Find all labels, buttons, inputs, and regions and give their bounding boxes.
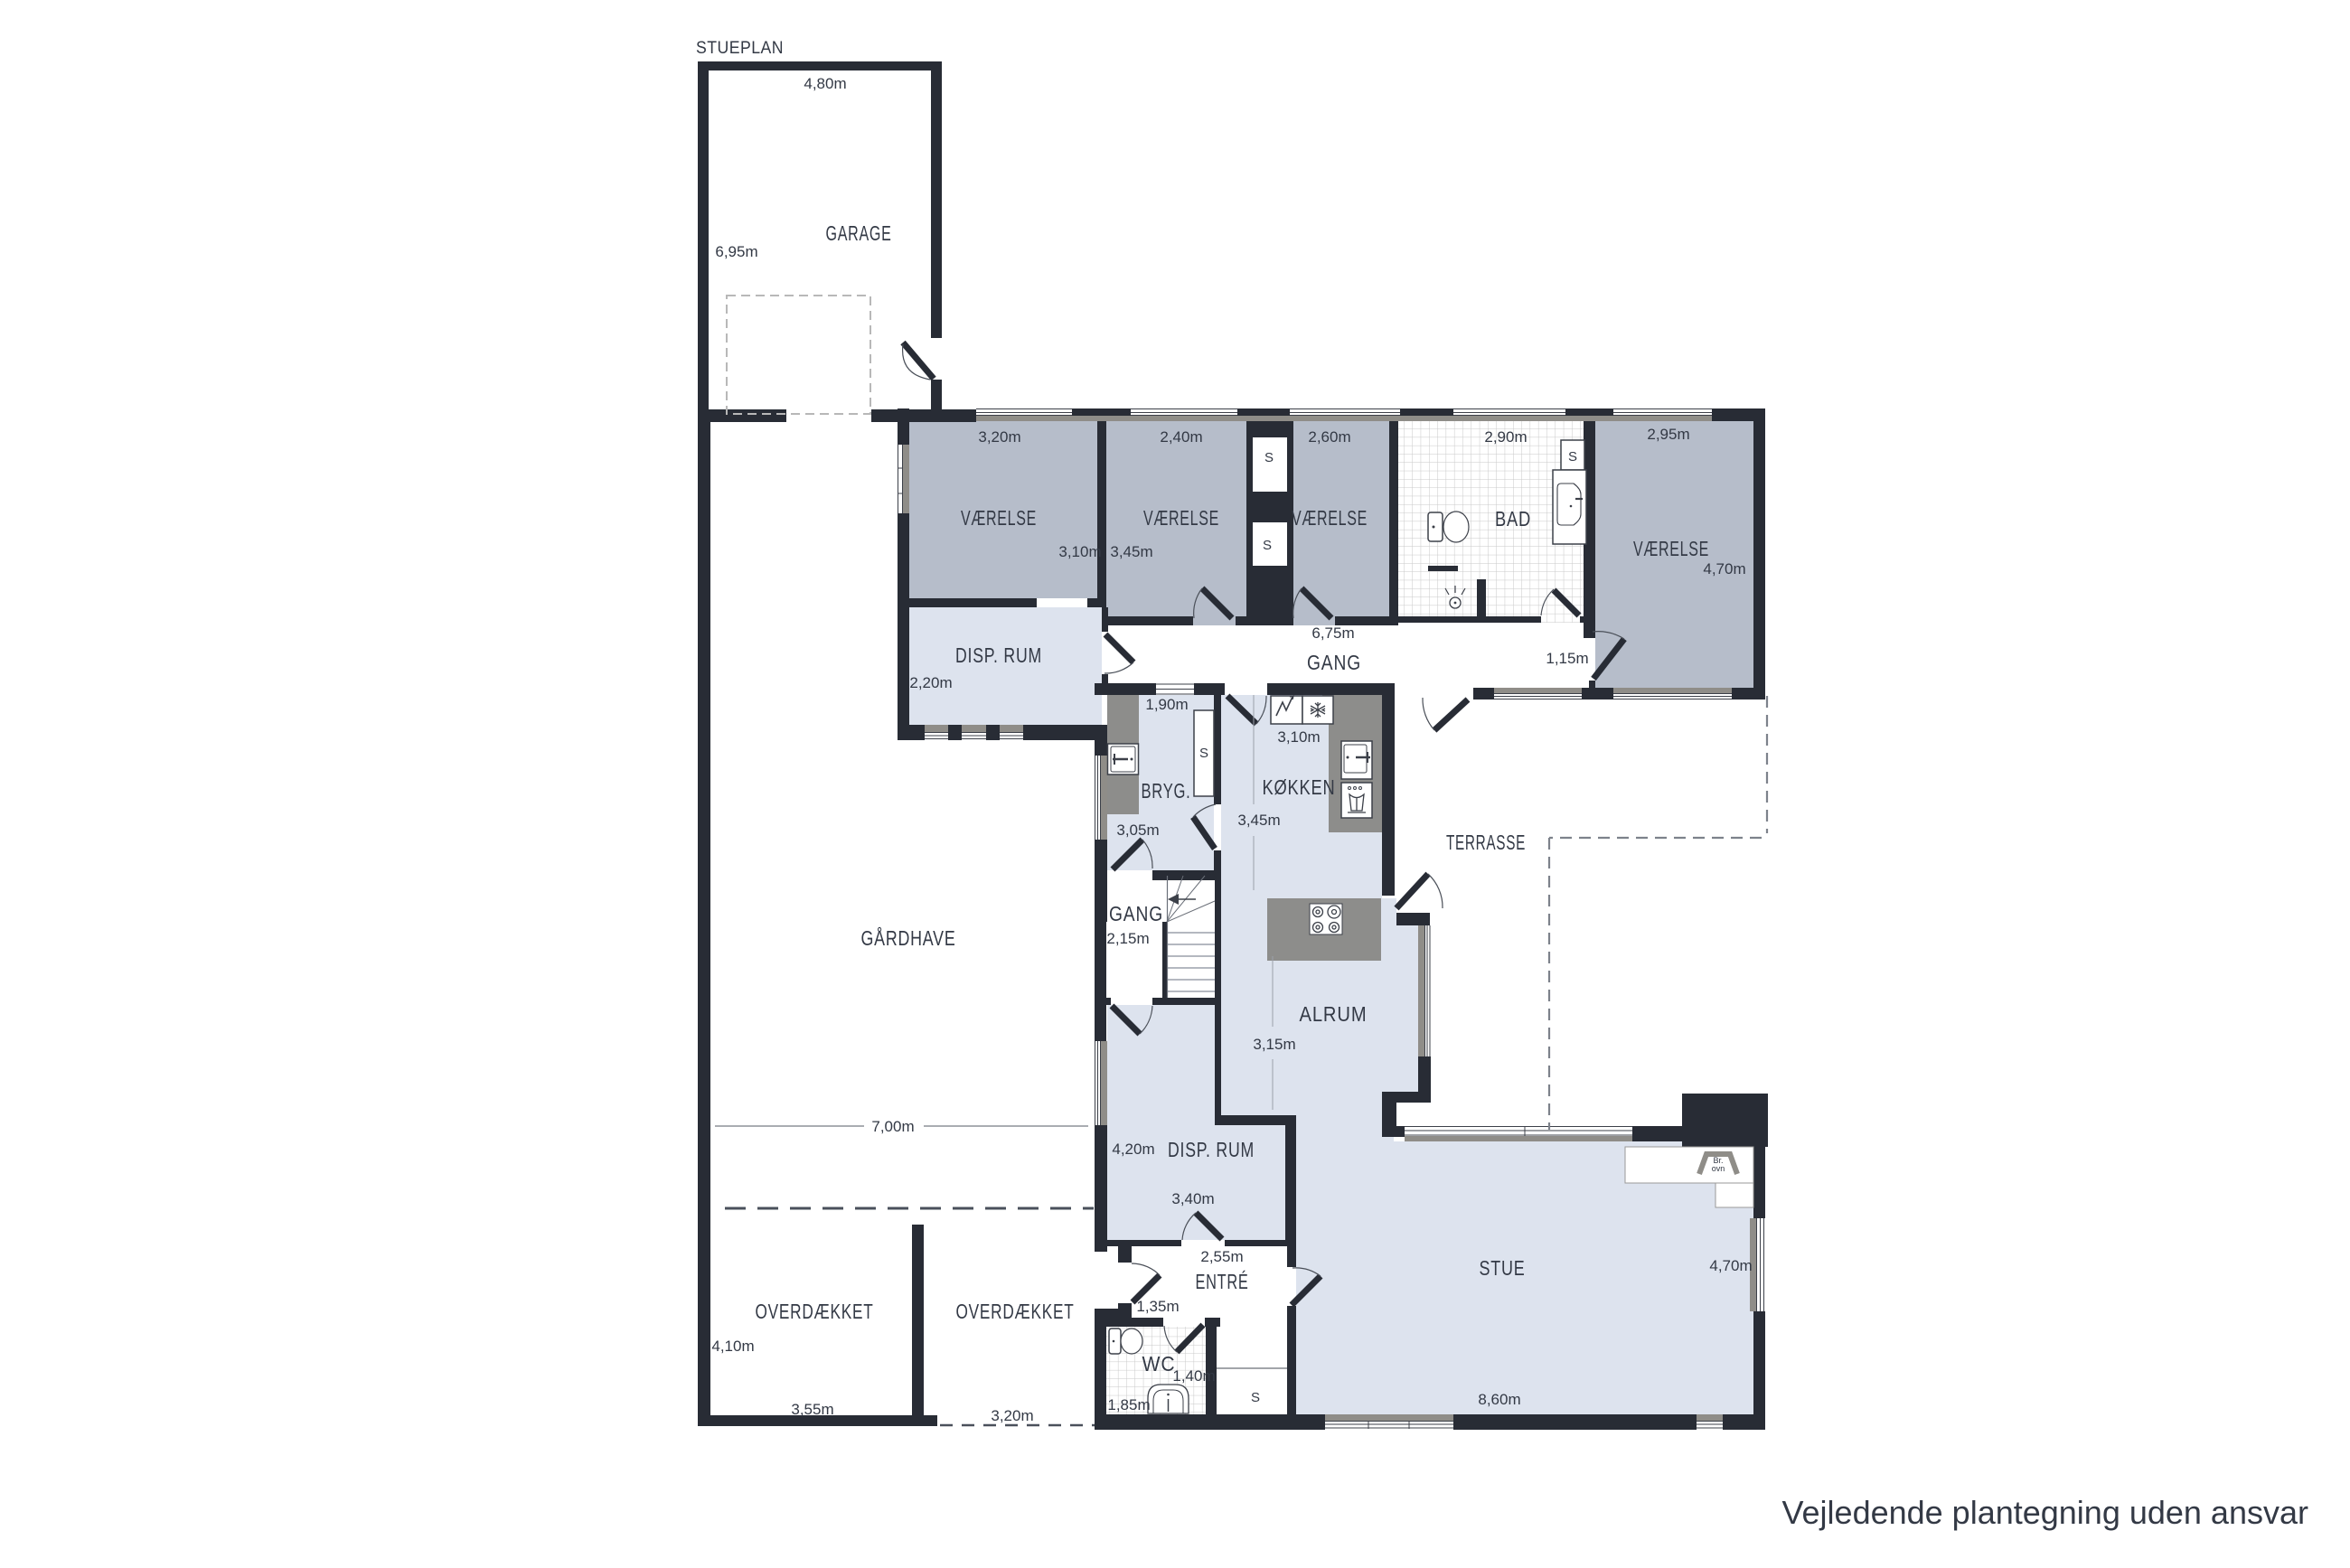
svg-text:WC: WC <box>1142 1352 1176 1376</box>
svg-text:1,90m: 1,90m <box>1145 696 1188 713</box>
svg-text:1,40m: 1,40m <box>1172 1367 1215 1385</box>
svg-text:4,80m: 4,80m <box>804 75 846 92</box>
svg-text:2,40m: 2,40m <box>1160 428 1202 446</box>
svg-text:2,90m: 2,90m <box>1484 428 1527 446</box>
svg-text:GÅRDHAVE: GÅRDHAVE <box>861 925 956 950</box>
svg-text:VÆRELSE: VÆRELSE <box>1292 506 1368 530</box>
svg-text:1,15m: 1,15m <box>1546 650 1588 667</box>
svg-text:3,20m: 3,20m <box>991 1407 1033 1424</box>
svg-text:3,10m: 3,10m <box>1277 728 1320 746</box>
svg-text:OVERDÆKKET: OVERDÆKKET <box>756 1300 874 1323</box>
svg-text:4,10m: 4,10m <box>711 1338 754 1355</box>
svg-text:2,55m: 2,55m <box>1200 1248 1243 1265</box>
svg-text:S: S <box>1264 450 1274 465</box>
svg-text:STUEPLAN: STUEPLAN <box>696 39 784 58</box>
svg-text:GANG: GANG <box>1109 902 1163 925</box>
svg-text:6,95m: 6,95m <box>715 243 757 260</box>
svg-text:S: S <box>1251 1390 1260 1405</box>
svg-text:4,70m: 4,70m <box>1709 1257 1752 1274</box>
svg-text:DISP. RUM: DISP. RUM <box>955 643 1042 667</box>
svg-text:3,10m: 3,10m <box>1058 543 1101 560</box>
svg-text:DISP. RUM: DISP. RUM <box>1168 1138 1255 1161</box>
svg-text:TERRASSE: TERRASSE <box>1446 831 1526 854</box>
svg-text:2,60m: 2,60m <box>1308 428 1350 446</box>
svg-text:3,05m: 3,05m <box>1116 822 1159 839</box>
svg-text:BRYG.: BRYG. <box>1142 779 1191 803</box>
svg-text:3,45m: 3,45m <box>1110 543 1152 560</box>
svg-text:STUE: STUE <box>1480 1256 1526 1280</box>
svg-text:VÆRELSE: VÆRELSE <box>1143 506 1219 530</box>
svg-text:6,75m: 6,75m <box>1311 624 1354 642</box>
svg-text:KØKKEN: KØKKEN <box>1263 775 1336 799</box>
svg-text:ovn: ovn <box>1712 1164 1725 1173</box>
svg-text:S: S <box>1263 538 1272 553</box>
svg-text:BAD: BAD <box>1495 507 1531 530</box>
svg-text:2,15m: 2,15m <box>1106 930 1149 947</box>
svg-text:OVERDÆKKET: OVERDÆKKET <box>956 1300 1075 1323</box>
svg-text:1,85m: 1,85m <box>1107 1396 1150 1413</box>
svg-text:ENTRÉ: ENTRÉ <box>1196 1270 1249 1293</box>
svg-text:3,45m: 3,45m <box>1237 812 1280 829</box>
svg-text:GARAGE: GARAGE <box>826 221 892 245</box>
svg-text:7,00m: 7,00m <box>871 1118 914 1135</box>
svg-text:Vejledende plantegning uden an: Vejledende plantegning uden ansvar <box>1782 1494 2309 1531</box>
svg-text:VÆRELSE: VÆRELSE <box>1633 537 1709 560</box>
svg-text:2,20m: 2,20m <box>909 674 952 691</box>
svg-text:3,40m: 3,40m <box>1171 1190 1214 1207</box>
svg-text:S: S <box>1199 746 1208 761</box>
svg-text:GANG: GANG <box>1307 651 1361 674</box>
svg-text:2,95m: 2,95m <box>1647 426 1689 443</box>
svg-text:VÆRELSE: VÆRELSE <box>961 506 1037 530</box>
svg-text:4,70m: 4,70m <box>1703 560 1745 577</box>
svg-text:3,55m: 3,55m <box>791 1401 833 1418</box>
svg-text:1,35m: 1,35m <box>1136 1298 1179 1315</box>
svg-text:ALRUM: ALRUM <box>1300 1002 1368 1026</box>
svg-text:3,15m: 3,15m <box>1253 1036 1295 1053</box>
svg-text:3,20m: 3,20m <box>978 428 1020 446</box>
svg-text:8,60m: 8,60m <box>1478 1391 1520 1408</box>
svg-text:4,20m: 4,20m <box>1112 1141 1154 1158</box>
svg-text:S: S <box>1568 449 1577 465</box>
